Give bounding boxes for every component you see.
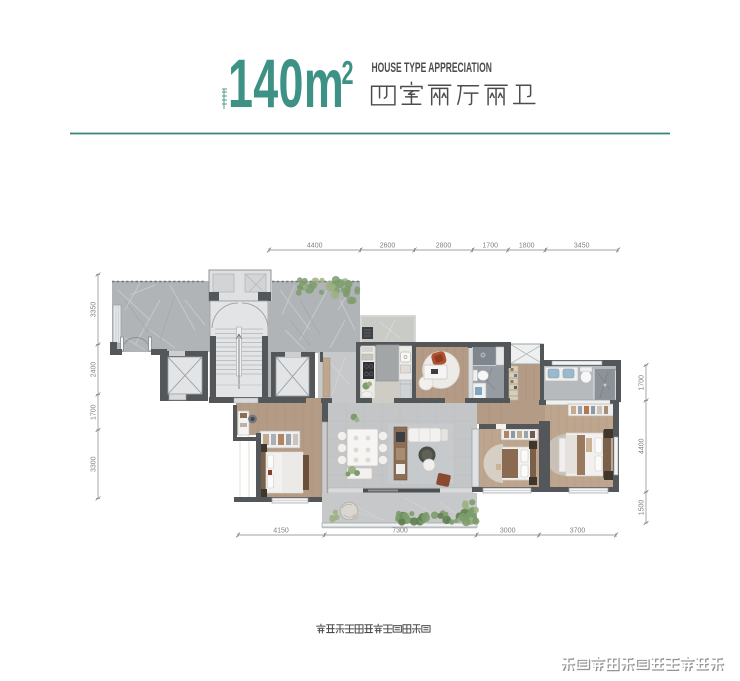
svg-text:3300: 3300 xyxy=(91,456,98,472)
svg-text:3350: 3350 xyxy=(91,302,98,318)
svg-text:140m: 140m xyxy=(228,47,344,123)
svg-text:2800: 2800 xyxy=(436,243,452,250)
svg-text:3000: 3000 xyxy=(500,528,516,535)
svg-text:HOUSE TYPE APPRECIATION: HOUSE TYPE APPRECIATION xyxy=(372,61,492,75)
svg-text:1800: 1800 xyxy=(519,243,535,250)
svg-text:4150: 4150 xyxy=(273,528,289,535)
svg-text:7300: 7300 xyxy=(392,528,408,535)
svg-text:1700: 1700 xyxy=(639,375,646,391)
svg-text:2400: 2400 xyxy=(91,362,98,378)
svg-text:1500: 1500 xyxy=(639,500,646,516)
svg-text:4400: 4400 xyxy=(307,243,323,250)
svg-text:1700: 1700 xyxy=(482,243,498,250)
svg-text:3450: 3450 xyxy=(574,243,590,250)
svg-text:4400: 4400 xyxy=(639,438,646,454)
svg-text:2600: 2600 xyxy=(380,243,396,250)
svg-text:3700: 3700 xyxy=(570,528,586,535)
svg-text:1700: 1700 xyxy=(91,404,98,420)
svg-text:2: 2 xyxy=(342,54,354,91)
